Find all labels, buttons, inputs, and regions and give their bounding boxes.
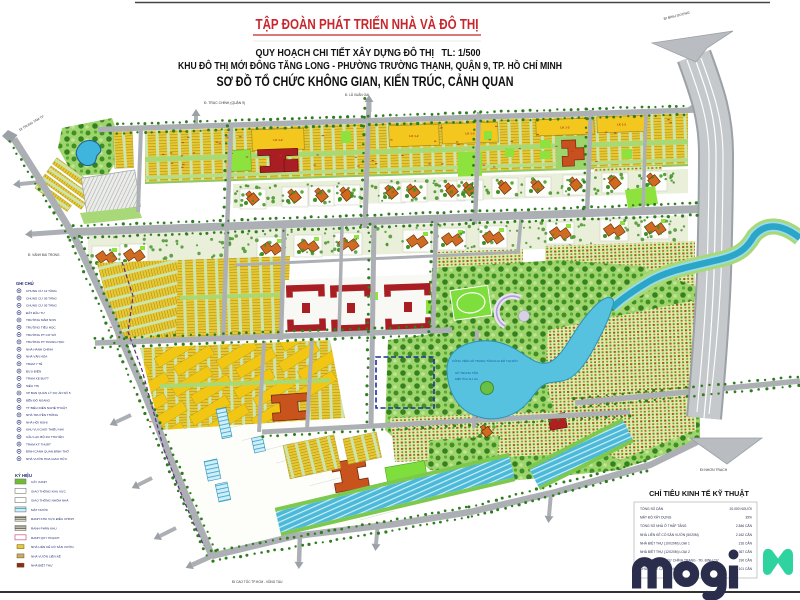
svg-text:NHÀ VƯỜN HOA GIAO HỮU: NHÀ VƯỜN HOA GIAO HỮU [26, 456, 67, 461]
svg-text:SIÊU THỊ: SIÊU THỊ [26, 383, 39, 388]
svg-text:RANH PHÂN KHU: RANH PHÂN KHU [31, 527, 57, 531]
svg-text:LK 1-2: LK 1-2 [560, 126, 570, 130]
svg-text:LK 1-2: LK 1-2 [617, 123, 627, 127]
svg-text:NHÀ HỘI NGHỊ: NHÀ HỘI NGHỊ [26, 419, 48, 424]
svg-text:TRƯỜNG PT TRUNG HỌC: TRƯỜNG PT TRUNG HỌC [26, 339, 65, 344]
svg-text:KHU ĐÔ THỊ MỚI ĐÔNG TĂNG LONG: KHU ĐÔ THỊ MỚI ĐÔNG TĂNG LONG - PHƯỜNG T… [178, 59, 562, 72]
svg-text:TRẠM KỸ THUẬT: TRẠM KỸ THUẬT [26, 441, 51, 446]
svg-text:KÝ HIỆU: KÝ HIỆU [15, 473, 32, 478]
svg-text:NHÀ HÀNH CHÍNH: NHÀ HÀNH CHÍNH [26, 347, 53, 351]
svg-text:TRƯỜNG MẦM NON: TRƯỜNG MẦM NON [26, 317, 56, 322]
svg-text:NHÀ VĂN HÓA: NHÀ VĂN HÓA [26, 354, 48, 359]
svg-text:216 CĂN: 216 CĂN [739, 541, 753, 545]
svg-text:ĐI NHƠN TRẠCH: ĐI NHƠN TRẠCH [700, 468, 728, 472]
svg-text:KHU VUI CHƠI THIẾU NHI: KHU VUI CHƠI THIẾU NHI [26, 427, 64, 432]
svg-text:VP BAN QUẢN LÝ DỰ ÁN SỐ 5: VP BAN QUẢN LÝ DỰ ÁN SỐ 5 [26, 390, 71, 395]
svg-text:CÂY XANH: CÂY XANH [31, 480, 47, 484]
svg-text:LK 1-2: LK 1-2 [273, 138, 283, 142]
svg-text:RANH QUY HOẠCH: RANH QUY HOẠCH [31, 536, 59, 540]
svg-text:2.846 CĂN: 2.846 CĂN [736, 524, 753, 528]
svg-text:2.162 CĂN: 2.162 CĂN [736, 533, 753, 537]
svg-text:MẬT ĐỘ XÂY DỰNG: MẬT ĐỘ XÂY DỰNG [640, 515, 672, 520]
svg-text:Đ. LÃ XUÂN OAI: Đ. LÃ XUÂN OAI [345, 92, 369, 97]
svg-text:NHÀ BIỆT THỰ: NHÀ BIỆT THỰ [31, 563, 53, 568]
svg-text:TỔNG SỐ NHÀ Ở THẤP TẦNG: TỔNG SỐ NHÀ Ở THẤP TẦNG [640, 523, 687, 528]
svg-text:CÔNG VIÊN HỒ TRUNG TÂM KHU ĐÔ: CÔNG VIÊN HỒ TRUNG TÂM KHU ĐÔ THỊ MỚI [452, 358, 518, 363]
svg-text:CHỈ TIÊU KINH TẾ KỸ THUẬT: CHỈ TIÊU KINH TẾ KỸ THUẬT [649, 488, 749, 498]
svg-text:CÂU LẠC BỘ DU THUYỀN: CÂU LẠC BỘ DU THUYỀN [26, 434, 64, 439]
svg-text:TT BIỂU DIỄN NGHỆ THUẬT: TT BIỂU DIỄN NGHỆ THUẬT [26, 405, 67, 410]
svg-text:NHÀ BIỆT THỰ (12X20M) LOẠI 2: NHÀ BIỆT THỰ (12X20M) LOẠI 2 [640, 549, 690, 554]
svg-text:CHUNG CƯ 12 TẦNG: CHUNG CƯ 12 TẦNG [26, 289, 57, 293]
svg-text:MẶT NƯỚC: MẶT NƯỚC [31, 507, 49, 512]
svg-text:NHÀ TRUYỀN THỐNG: NHÀ TRUYỀN THỐNG [26, 412, 59, 417]
svg-text:Đ. VÀNH ĐAI TRONG: Đ. VÀNH ĐAI TRONG [28, 253, 60, 257]
svg-text:ĐI CAO TỐC TP.HCM - VŨNG TÀU: ĐI CAO TỐC TP.HCM - VŨNG TÀU [232, 579, 283, 584]
svg-text:LK 1-2: LK 1-2 [465, 132, 475, 136]
svg-text:GIAO THÔNG KHU VỰC: GIAO THÔNG KHU VỰC [31, 488, 67, 493]
svg-text:35%: 35% [745, 516, 752, 520]
svg-text:ĐẤT ĐẦU TƯ: ĐẤT ĐẦU TƯ [26, 311, 45, 315]
svg-text:TẬP ĐOÀN PHÁT TRIỂN NHÀ VÀ ĐÔ: TẬP ĐOÀN PHÁT TRIỂN NHÀ VÀ ĐÔ THỊ [256, 15, 479, 33]
svg-text:TRẠM Y TẾ: TRẠM Y TẾ [26, 361, 42, 366]
svg-text:20.000 NGƯỜI: 20.000 NGƯỜI [729, 506, 752, 511]
svg-text:GHI CHÚ: GHI CHÚ [16, 281, 34, 286]
svg-text:CHUNG CƯ 05 TẦNG: CHUNG CƯ 05 TẦNG [26, 304, 57, 308]
svg-text:190 CĂN: 190 CĂN [739, 559, 753, 563]
svg-text:LK 1-2: LK 1-2 [409, 134, 419, 138]
svg-text:Đ. TRỤC CHÍNH (QUẬN 9): Đ. TRỤC CHÍNH (QUẬN 9) [204, 101, 245, 105]
svg-text:ĐÌNH CẢNH QUAN ĐÌNH THỜ: ĐÌNH CẢNH QUAN ĐÌNH THỜ [26, 449, 69, 454]
svg-text:TRẠM XE BUÝT: TRẠM XE BUÝT [26, 377, 49, 381]
svg-text:NHÀ BIỆT THỰ (10X20M) LOẠI 1: NHÀ BIỆT THỰ (10X20M) LOẠI 1 [640, 540, 690, 545]
svg-text:TRƯỜNG TIỂU HỌC: TRƯỜNG TIỂU HỌC [26, 325, 56, 330]
svg-text:NHÀ LIÊN KẾ CÓ SÂN VƯỜN (5X20M: NHÀ LIÊN KẾ CÓ SÂN VƯỜN (5X20M) [640, 532, 699, 537]
svg-text:TRƯỜNG PT CƠ SỞ: TRƯỜNG PT CƠ SỞ [26, 332, 56, 337]
svg-text:CHUNG CƯ 09 TẦNG: CHUNG CƯ 09 TẦNG [26, 296, 57, 300]
svg-text:367 CĂN: 367 CĂN [739, 550, 753, 554]
svg-text:SƠ ĐỒ TỔ CHỨC KHÔNG GIAN, KIẾN: SƠ ĐỒ TỔ CHỨC KHÔNG GIAN, KIẾN TRÚC, CẢN… [217, 74, 514, 89]
svg-text:NHÀ LIÊN KẾ CÓ SÂN VƯỜN: NHÀ LIÊN KẾ CÓ SÂN VƯỜN [31, 544, 73, 549]
svg-text:BẾN ĐÒ NGANG: BẾN ĐÒ NGANG [26, 398, 51, 403]
svg-text:101 CĂN: 101 CĂN [739, 567, 753, 571]
svg-text:TỔNG SỐ DÂN: TỔNG SỐ DÂN [640, 506, 664, 511]
svg-text:BƯU ĐIỆN: BƯU ĐIỆN [26, 368, 41, 373]
svg-text:NHÀ VƯỜN LIÊN KẾ: NHÀ VƯỜN LIÊN KẾ [31, 553, 61, 558]
svg-text:HỒ TRUNG TÂM: HỒ TRUNG TÂM [455, 370, 479, 375]
svg-text:GIAO THÔNG NHÓM NHÀ: GIAO THÔNG NHÓM NHÀ [31, 498, 69, 503]
svg-text:RANH KHU VỰC ĐIỀU CHỈNH: RANH KHU VỰC ĐIỀU CHỈNH [31, 516, 74, 521]
svg-text:QUY HOẠCH CHI TIẾT XÂY DỰNG ĐÔ: QUY HOẠCH CHI TIẾT XÂY DỰNG ĐÔ THỊ TL: 1… [256, 46, 481, 59]
